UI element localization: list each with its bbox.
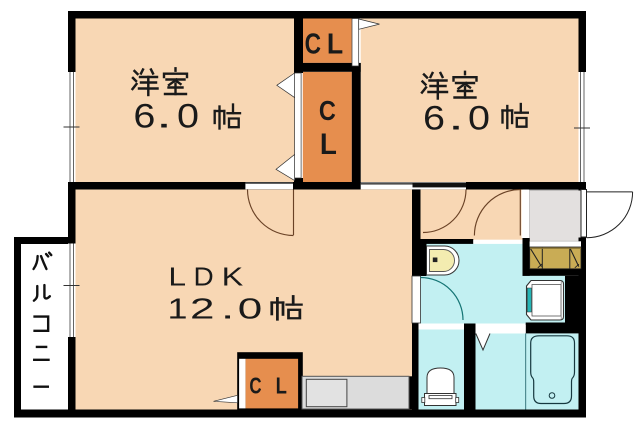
svg-text:2: 2 [190, 293, 215, 325]
svg-text:.: . [448, 100, 464, 138]
svg-text:C: C [249, 372, 261, 398]
svg-text:D: D [194, 261, 214, 291]
svg-text:.: . [156, 97, 172, 135]
svg-text:0: 0 [468, 100, 490, 138]
svg-text:6: 6 [423, 100, 445, 138]
svg-text:.: . [221, 293, 235, 325]
svg-text:C: C [319, 95, 336, 126]
svg-text:K: K [222, 261, 244, 291]
svg-text:L: L [327, 29, 343, 61]
svg-text:L: L [276, 372, 287, 398]
svg-text:1: 1 [168, 293, 188, 325]
svg-text:6: 6 [133, 97, 155, 135]
svg-text:0: 0 [177, 97, 199, 135]
svg-text:C: C [305, 29, 321, 61]
svg-text:L: L [320, 128, 337, 161]
svg-text:0: 0 [238, 293, 262, 325]
svg-text:L: L [168, 261, 186, 291]
